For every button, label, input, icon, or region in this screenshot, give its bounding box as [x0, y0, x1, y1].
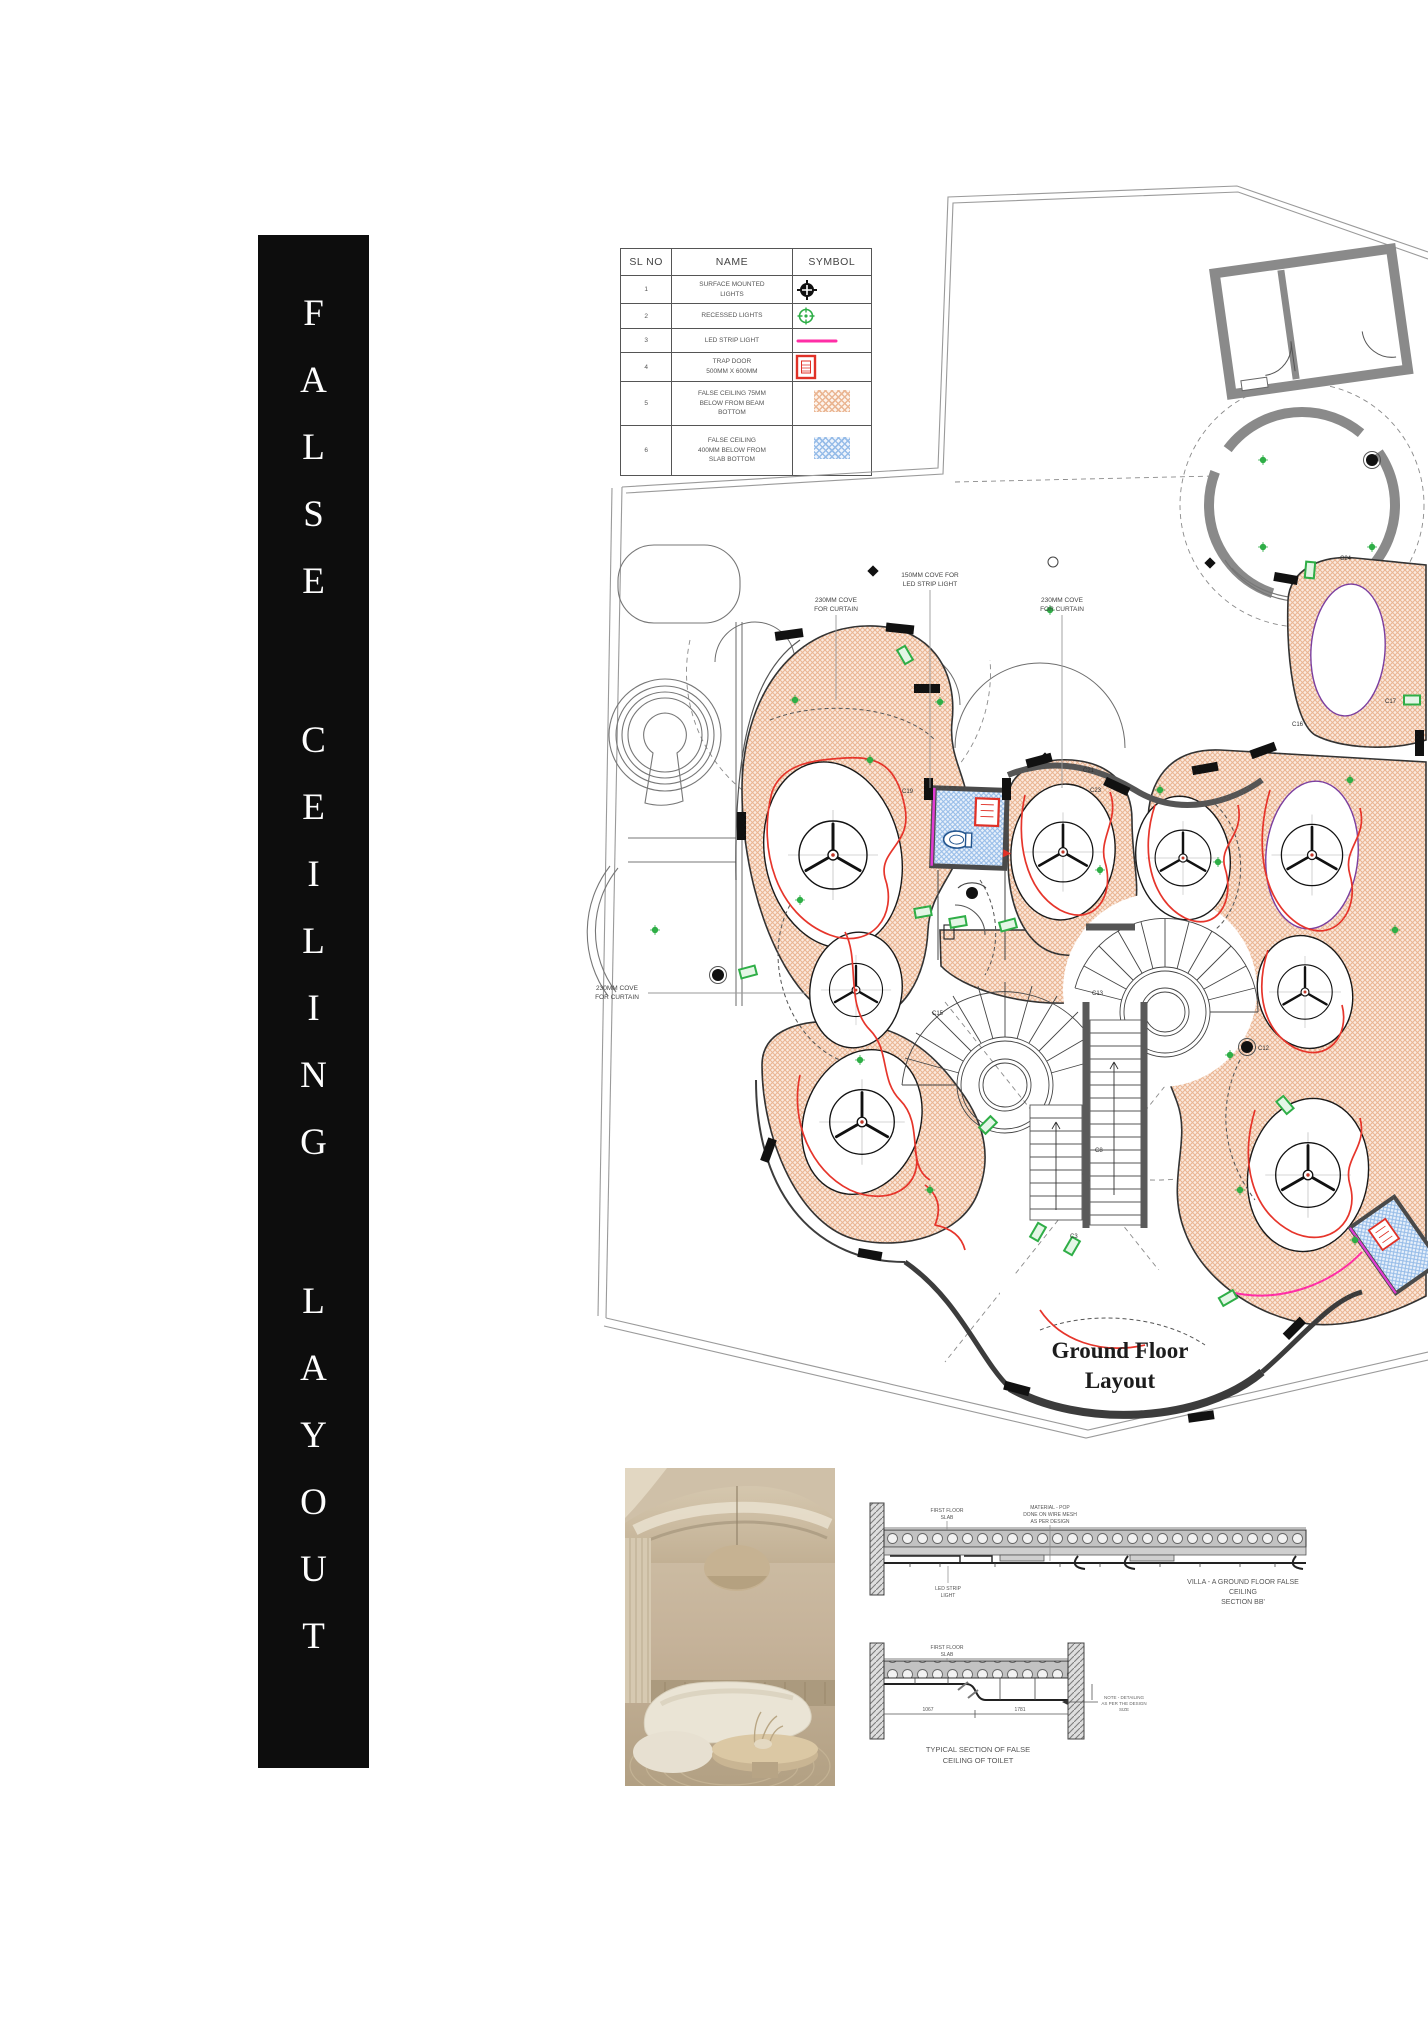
svg-text:230MM COVE: 230MM COVE [1041, 597, 1084, 604]
svg-text:C17: C17 [1385, 699, 1397, 705]
svg-text:C13: C13 [1092, 991, 1104, 997]
section-bb: FIRST FLOOR SLAB MATERIAL - POP DONE ON … [870, 1503, 1306, 1606]
svg-text:LED STRIP: LED STRIP [935, 1586, 962, 1592]
svg-text:VILLA - A GROUND FLOOR FALSE: VILLA - A GROUND FLOOR FALSE [1187, 1579, 1299, 1586]
banner-word-false: FALSE [295, 293, 332, 628]
svg-text:FIRST FLOOR: FIRST FLOOR [931, 1508, 964, 1514]
svg-text:MATERIAL - POP: MATERIAL - POP [1030, 1505, 1070, 1511]
svg-text:CEILING: CEILING [1229, 1589, 1257, 1596]
svg-text:C3: C3 [1070, 1234, 1078, 1240]
interior-reference-photo [625, 1468, 835, 1786]
svg-text:150MM COVE FOR: 150MM COVE FOR [901, 572, 959, 579]
svg-text:CEILING OF TOILET: CEILING OF TOILET [943, 1756, 1014, 1765]
svg-text:SLAB: SLAB [941, 1515, 954, 1521]
title-banner: FALSE CEILING LAYOUT [258, 235, 369, 1768]
svg-text:LIGHT: LIGHT [941, 1593, 956, 1599]
svg-text:C16: C16 [1292, 722, 1304, 728]
svg-text:C24: C24 [1340, 556, 1352, 562]
section-details-drawing: FIRST FLOOR SLAB MATERIAL - POP DONE ON … [860, 1490, 1330, 1790]
svg-text:FIRST FLOOR: FIRST FLOOR [931, 1645, 964, 1651]
svg-text:C8: C8 [1095, 1148, 1103, 1154]
plan-title-line2: Layout [1020, 1366, 1220, 1396]
svg-text:SIZE: SIZE [1119, 1707, 1129, 1712]
entry-porch [587, 545, 742, 1006]
section-toilet: FIRST FLOOR SLAB 1067 1781 NOTE - DETAIL… [870, 1643, 1147, 1765]
svg-text:230MM COVE: 230MM COVE [596, 985, 639, 992]
plan-title-line1: Ground Floor [1020, 1336, 1220, 1366]
presentation-board: FALSE CEILING LAYOUT SL NO NAME SYMBOL 1… [0, 0, 1428, 2018]
svg-text:1781: 1781 [1014, 1707, 1025, 1713]
svg-text:LED STRIP LIGHT: LED STRIP LIGHT [903, 581, 957, 588]
svg-text:SLAB: SLAB [941, 1652, 954, 1658]
svg-text:AS PER DESIGN: AS PER DESIGN [1031, 1519, 1070, 1525]
svg-text:C12: C12 [1258, 1046, 1270, 1052]
svg-text:C15: C15 [932, 1011, 944, 1017]
svg-text:C21: C21 [1083, 768, 1095, 774]
top-right-room [1215, 249, 1408, 395]
svg-text:AS PER THE DESIGN: AS PER THE DESIGN [1101, 1701, 1146, 1706]
floor-plan-drawing: 150MM COVE FOR LED STRIP LIGHT 230MM COV… [480, 180, 1428, 1460]
svg-text:FOR CURTAIN: FOR CURTAIN [1040, 606, 1084, 613]
svg-text:FOR CURTAIN: FOR CURTAIN [814, 606, 858, 613]
toilet-room [932, 788, 1014, 869]
svg-text:1067: 1067 [922, 1707, 933, 1713]
banner-word-ceiling: CEILING [295, 720, 332, 1189]
straight-stair [1030, 1002, 1144, 1228]
svg-text:SECTION BB': SECTION BB' [1221, 1599, 1265, 1606]
photo-illustration [625, 1468, 835, 1786]
svg-text:NOTE - DETAILING: NOTE - DETAILING [1104, 1695, 1144, 1700]
plan-title: Ground Floor Layout [1020, 1336, 1220, 1396]
svg-text:DONE ON WIRE MESH: DONE ON WIRE MESH [1023, 1512, 1077, 1518]
svg-text:C19: C19 [902, 789, 914, 795]
banner-word-layout: LAYOUT [295, 1281, 332, 1683]
svg-text:TYPICAL SECTION OF FALSE: TYPICAL SECTION OF FALSE [926, 1745, 1030, 1754]
svg-text:C23: C23 [1090, 788, 1102, 794]
svg-text:230MM COVE: 230MM COVE [815, 597, 858, 604]
svg-text:FOR CURTAIN: FOR CURTAIN [595, 994, 639, 1001]
